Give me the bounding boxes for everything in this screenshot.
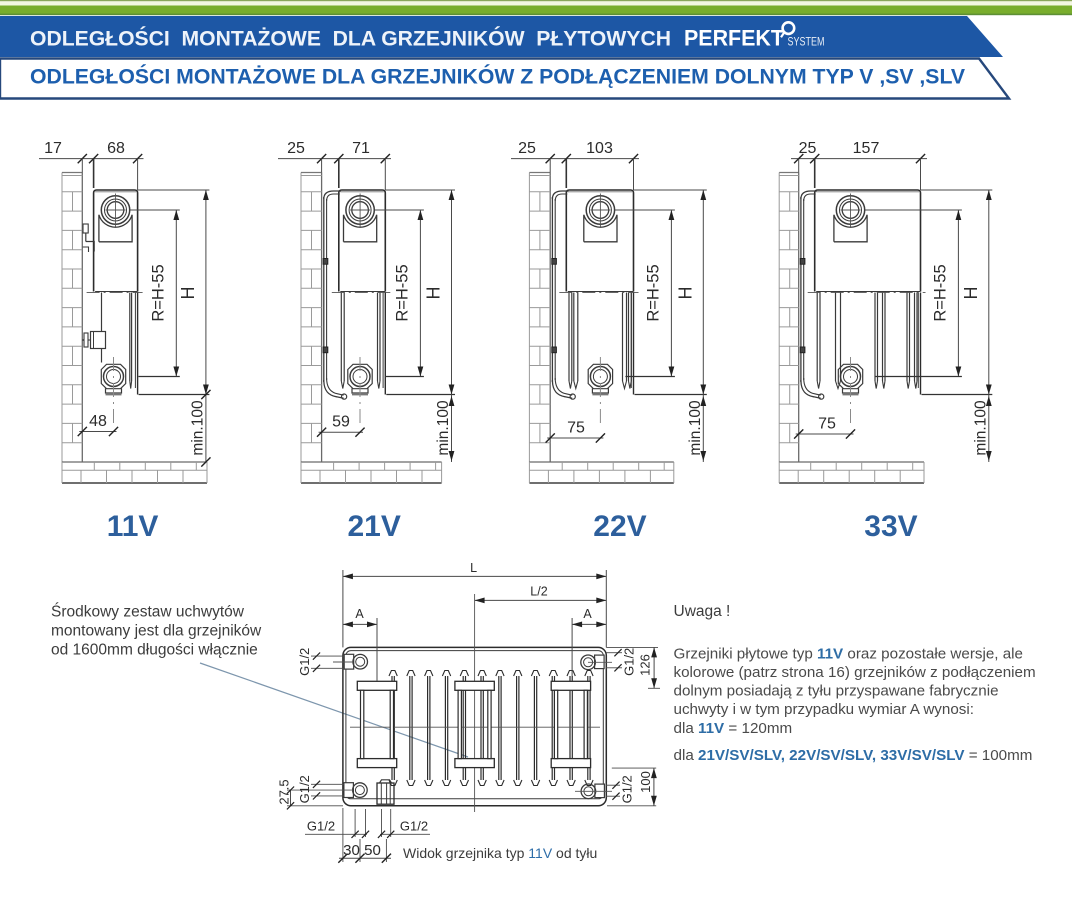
svg-text:A: A (583, 607, 592, 621)
svg-text:21V: 21V (348, 510, 401, 543)
svg-text:L/2: L/2 (530, 585, 547, 599)
svg-text:ODLEGŁOŚCI MONTAŻOWE DLA GRZEJ: ODLEGŁOŚCI MONTAŻOWE DLA GRZEJNIKÓW Z PO… (30, 64, 965, 88)
svg-text:R=H-55: R=H-55 (644, 264, 662, 321)
svg-text:H: H (961, 287, 981, 300)
svg-text:75: 75 (567, 420, 585, 437)
svg-text:48: 48 (89, 413, 107, 430)
svg-text:H: H (675, 287, 695, 300)
svg-text:H: H (178, 287, 198, 300)
svg-text:kolorowe (patrz strona 16) grz: kolorowe (patrz strona 16) grzejników z … (674, 664, 1036, 681)
svg-text:dolnym posiadają z tyłu przysp: dolnym posiadają z tyłu przyspawane fabr… (674, 683, 999, 700)
svg-text:od 1600mm długości włącznie: od 1600mm długości włącznie (51, 642, 258, 659)
svg-text:Grzejniki płytowe typ 11V oraz: Grzejniki płytowe typ 11V oraz pozostałe… (674, 646, 1024, 663)
svg-text:A: A (355, 607, 364, 621)
svg-text:min.100: min.100 (435, 400, 452, 456)
svg-text:G1/2: G1/2 (297, 648, 312, 676)
svg-text:126: 126 (638, 654, 653, 676)
svg-text:50: 50 (364, 842, 381, 859)
svg-text:dla 21V/SV/SLV, 22V/SV/SLV, 33: dla 21V/SV/SLV, 22V/SV/SLV, 33V/SV/SLV =… (674, 747, 1033, 764)
svg-text:ODLEGŁOŚCI MONTAŻOWE DLA GRZ: ODLEGŁOŚCI MONTAŻOWE DLA GRZEJNIKÓW PŁYT… (30, 25, 671, 50)
svg-text:25: 25 (287, 140, 305, 157)
svg-text:PERFEKT: PERFEKT (684, 26, 785, 51)
svg-text:dla 11V = 120mm: dla 11V = 120mm (674, 720, 793, 737)
svg-text:157: 157 (853, 140, 880, 157)
svg-text:33V: 33V (864, 510, 917, 543)
svg-text:68: 68 (107, 140, 125, 157)
svg-text:25: 25 (518, 140, 536, 157)
svg-text:71: 71 (352, 140, 370, 157)
svg-text:G1/2: G1/2 (297, 775, 312, 803)
svg-text:Środkowy zestaw uchwytów: Środkowy zestaw uchwytów (51, 603, 245, 621)
svg-text:27.5: 27.5 (277, 779, 292, 804)
svg-text:R=H-55: R=H-55 (149, 264, 167, 321)
svg-text:Widok grzejnika typ 11V od tył: Widok grzejnika typ 11V od tyłu (403, 845, 597, 861)
svg-text:103: 103 (586, 140, 613, 157)
svg-text:11V: 11V (107, 510, 159, 543)
svg-text:R=H-55: R=H-55 (931, 264, 949, 321)
svg-text:montowany jest dla grzejników: montowany jest dla grzejników (51, 623, 262, 640)
svg-text:H: H (424, 287, 444, 300)
svg-text:100: 100 (638, 771, 653, 793)
svg-text:17: 17 (44, 140, 62, 157)
svg-text:SYSTEM: SYSTEM (788, 37, 825, 49)
svg-text:L: L (470, 561, 477, 575)
svg-text:uchwyty i w tym przypadku wymi: uchwyty i w tym przypadku wymiar A wynos… (674, 701, 974, 718)
svg-text:G1/2: G1/2 (400, 819, 428, 834)
svg-text:25: 25 (799, 140, 817, 157)
svg-text:G1/2: G1/2 (620, 775, 635, 803)
svg-text:Uwaga !: Uwaga ! (674, 603, 731, 620)
svg-text:G1/2: G1/2 (622, 648, 637, 676)
svg-text:G1/2: G1/2 (307, 819, 335, 834)
svg-text:min.100: min.100 (189, 400, 206, 456)
svg-text:30: 30 (343, 842, 360, 859)
svg-text:59: 59 (332, 414, 350, 431)
svg-text:75: 75 (818, 416, 836, 433)
svg-text:min.100: min.100 (972, 400, 989, 456)
svg-text:22V: 22V (593, 510, 646, 543)
svg-text:min.100: min.100 (687, 400, 704, 456)
svg-text:R=H-55: R=H-55 (393, 264, 411, 321)
